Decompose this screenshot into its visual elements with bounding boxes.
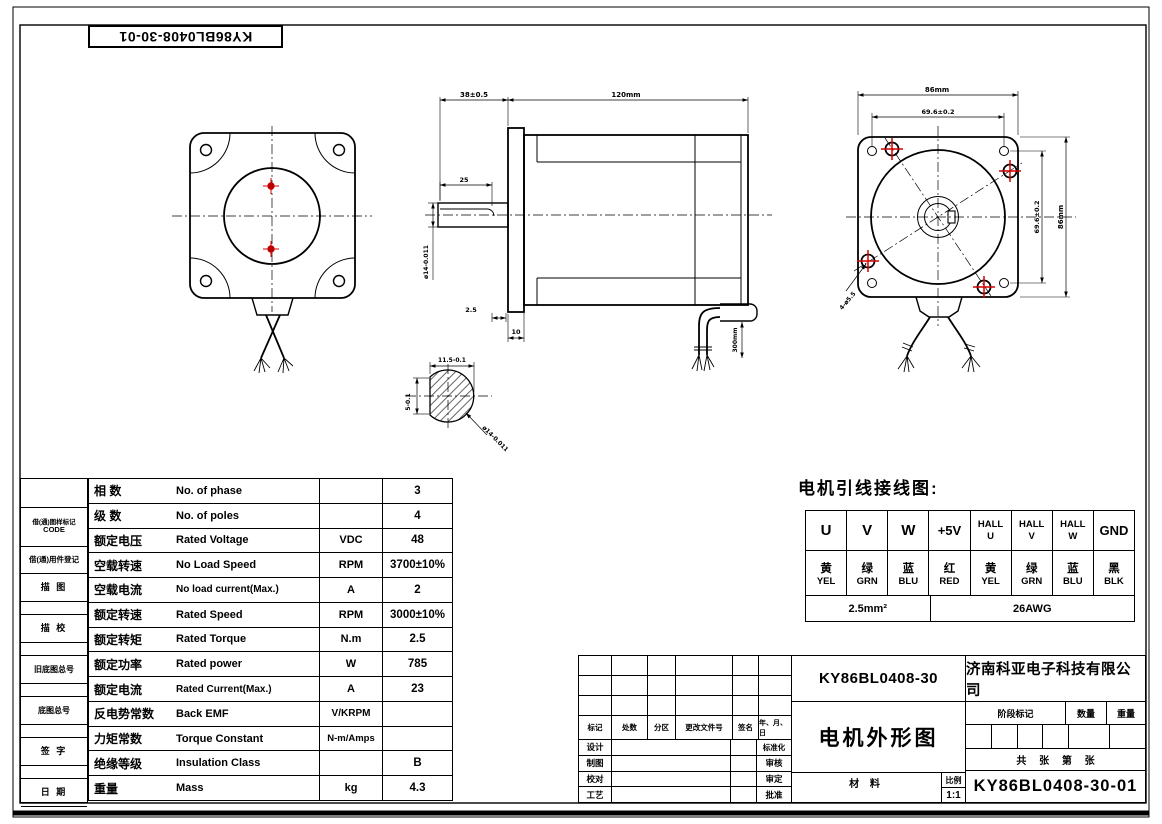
spec-unit: kg: [320, 776, 383, 800]
spec-row: 额定转矩Rated TorqueN.m2.5: [89, 628, 452, 653]
spec-row: 相 数No. of phase3: [89, 479, 452, 504]
spec-row: 额定转速Rated SpeedRPM3000±10%: [89, 603, 452, 628]
wiring-table: U V W +5V HALLU HALLV HALLW GND 黄YEL 绿GR…: [805, 510, 1135, 622]
spec-value: 23: [383, 677, 452, 701]
gauge-rest: 26AWG: [931, 596, 1135, 621]
dim-label-section-width: 11.5-0.1: [438, 357, 466, 364]
spec-en: Insulation Class: [176, 757, 260, 769]
spec-unit: A: [320, 677, 383, 701]
spec-en: Torque Constant: [176, 733, 263, 745]
front-red-pin-holes: [263, 178, 279, 257]
spec-value: 4.3: [383, 776, 452, 800]
strip-borrowed-parts: 借(通)用件登记: [21, 547, 87, 574]
scale-label: 比例: [942, 773, 965, 788]
gauge-uvw: 2.5mm²: [806, 596, 931, 621]
spec-row: 空载电流No load current(Max.)A2: [89, 578, 452, 603]
spec-cn: 空载电流: [94, 581, 176, 598]
wire-color: 绿GRN: [847, 551, 888, 595]
wiring-color-row: 黄YEL 绿GRN 蓝BLU 红RED 黄YEL 绿GRN 蓝BLU 黑BLK: [806, 551, 1134, 596]
label-design: 设计: [579, 740, 612, 755]
rev-header-row: 标记 处数 分区 更改文件号 签名 年、月、日: [579, 716, 791, 740]
dim-label-flange-step: 2.5: [465, 306, 477, 314]
side-wires: [692, 308, 720, 371]
label-draft: 制图: [579, 756, 612, 771]
strip-signature: 签 字: [21, 738, 87, 766]
spec-cn: 额定转速: [94, 606, 176, 623]
rev-header-sign: 签名: [733, 716, 759, 739]
dim-label-shaft-flat: 25: [459, 176, 469, 184]
spec-row: 力矩常数Torque ConstantN-m/Amps: [89, 727, 452, 752]
spec-row: 额定功率Rated powerW785: [89, 652, 452, 677]
spec-cn: 级 数: [94, 507, 176, 524]
spec-en: Rated Voltage: [176, 534, 249, 546]
dim-label-shaft-dia: ø14-0.011: [423, 245, 430, 279]
strip-empty: [21, 684, 87, 697]
material-label: 材 料: [792, 773, 942, 802]
part-number-rotated: KY86BL0408-30-01: [119, 29, 252, 45]
pin-v: V: [847, 511, 888, 550]
spec-en: Rated Torque: [176, 633, 246, 645]
spec-row: 额定电压Rated VoltageVDC48: [89, 529, 452, 554]
spec-cn: 额定转矩: [94, 631, 176, 648]
label-standardization: 标准化: [757, 740, 791, 755]
rev-empty-row: [579, 696, 791, 716]
rev-header-mark: 标记: [579, 716, 612, 739]
label-check: 校对: [579, 772, 612, 787]
sign-row: 设计标准化: [579, 740, 791, 756]
spec-value: 3700±10%: [383, 553, 452, 577]
title-block-middle: KY86BL0408-30 电机外形图 材 料 比例 1:1: [792, 656, 966, 802]
spec-en: Back EMF: [176, 708, 229, 720]
front-view: [172, 126, 372, 373]
wiring-gauge-row: 2.5mm² 26AWG: [806, 596, 1134, 621]
wire-color: 蓝BLU: [888, 551, 929, 595]
title-block-right: 济南科亚电子科技有限公司 阶段标记 数量 重量 共 张 第 张 KY86BL04…: [966, 656, 1145, 802]
sign-row: 工艺批准: [579, 787, 791, 802]
spec-unit: RPM: [320, 553, 383, 577]
sign-row: 校对审定: [579, 772, 791, 788]
spec-en: Mass: [176, 782, 204, 794]
rev-header-count: 处数: [612, 716, 648, 739]
spec-row: 额定电流Rated Current(Max.)A23: [89, 677, 452, 702]
wiring-title: 电机引线接线图:: [798, 474, 939, 499]
spec-value: 48: [383, 529, 452, 553]
spec-unit: A: [320, 578, 383, 602]
pin-w: W: [888, 511, 929, 550]
spec-value: [383, 727, 452, 751]
drawing-sheet: 38±0.5 120mm 25 ø14-0.011 2.5 10 300mm 1…: [0, 0, 1162, 824]
spec-table: 相 数No. of phase3 级 数No. of poles4 额定电压Ra…: [88, 478, 453, 801]
wiring-pin-row: U V W +5V HALLU HALLV HALLW GND: [806, 511, 1134, 551]
pin-hall-u: HALLU: [971, 511, 1012, 550]
spec-value: 3000±10%: [383, 603, 452, 627]
spec-unit: [320, 504, 383, 528]
spec-cn: 额定电流: [94, 681, 176, 698]
rear-view: [846, 126, 1076, 372]
dim-label-rear-hole-callout: 4-ø5.5: [838, 291, 857, 312]
stage-header-row: 阶段标记 数量 重量: [966, 702, 1145, 725]
wire-color: 黄YEL: [806, 551, 847, 595]
dim-label-rear-holes-top: 69.6±0.2: [922, 108, 955, 116]
strip-tracing: 描 图: [21, 574, 87, 602]
spec-cn: 重量: [94, 780, 176, 797]
rev-empty-row: [579, 676, 791, 696]
spec-cn: 绝缘等级: [94, 755, 176, 772]
strip-date: 日 期: [21, 779, 87, 807]
revision-grid: 标记 处数 分区 更改文件号 签名 年、月、日 设计标准化 制图审核 校对审定 …: [579, 656, 792, 802]
spec-unit: [320, 479, 383, 503]
spec-value: 785: [383, 652, 452, 676]
rev-empty-row: [579, 656, 791, 676]
dim-label-side-front: 38±0.5: [460, 91, 488, 99]
stage-mark-label: 阶段标记: [966, 702, 1066, 724]
label-ratify: 批准: [757, 787, 791, 802]
dim-label-rear-outer-right: 86mm: [1057, 205, 1065, 229]
pin-u: U: [806, 511, 847, 550]
spec-unit: N-m/Amps: [320, 727, 383, 751]
strip-empty: [21, 643, 87, 656]
spec-unit: RPM: [320, 603, 383, 627]
dim-label-section-dia: ø14-0.011: [481, 424, 510, 453]
sign-row: 制图审核: [579, 756, 791, 772]
weight-label: 重量: [1107, 702, 1145, 724]
label-review: 审核: [757, 756, 791, 771]
drawing-title: 电机外形图: [792, 702, 965, 773]
spec-row: 空载转速No Load SpeedRPM3700±10%: [89, 553, 452, 578]
registration-strip: 借(通)图样标记 CODE 借(通)用件登记 描 图 描 校 旧底图总号 底图总…: [20, 478, 88, 803]
spec-unit: VDC: [320, 529, 383, 553]
label-process: 工艺: [579, 787, 612, 802]
dim-label-rear-outer-top: 86mm: [925, 86, 949, 94]
spec-value: 2: [383, 578, 452, 602]
spec-cn: 额定电压: [94, 532, 176, 549]
model-number: KY86BL0408-30: [792, 656, 965, 702]
spec-en: Rated power: [176, 658, 242, 670]
shaft-section-view: [406, 364, 492, 428]
spec-cn: 额定功率: [94, 656, 176, 673]
spec-en: Rated Speed: [176, 609, 243, 621]
pin-hall-w: HALLW: [1053, 511, 1094, 550]
rev-header-date: 年、月、日: [759, 716, 791, 739]
dim-label-flange-thick: 10: [511, 328, 521, 336]
wire-color: 黑BLK: [1094, 551, 1134, 595]
wire-color: 红RED: [929, 551, 970, 595]
dim-label-side-body: 120mm: [611, 91, 640, 99]
strip-empty: [21, 602, 87, 615]
spec-cn: 相 数: [94, 482, 176, 499]
side-view: [425, 128, 772, 371]
spec-en: No. of phase: [176, 485, 242, 497]
strip-empty: [21, 725, 87, 738]
strip-sample-mark: 借(通)图样标记 CODE: [21, 508, 87, 547]
spec-en: No Load Speed: [176, 559, 256, 571]
strip-empty: [21, 766, 87, 779]
front-wires: [254, 315, 293, 373]
scale-value: 1:1: [942, 788, 965, 802]
spec-row: 级 数No. of poles4: [89, 504, 452, 529]
strip-code-label: CODE: [43, 526, 65, 535]
company-name: 济南科亚电子科技有限公司: [966, 656, 1145, 702]
spec-row: 绝缘等级Insulation ClassB: [89, 751, 452, 776]
pin-5v: +5V: [929, 511, 970, 550]
spec-value: 3: [383, 479, 452, 503]
rev-header-zone: 分区: [648, 716, 676, 739]
spec-en: No load current(Max.): [176, 584, 279, 595]
spec-unit: V/KRPM: [320, 702, 383, 726]
wire-color: 蓝BLU: [1053, 551, 1094, 595]
spec-row: 反电势常数Back EMFV/KRPM: [89, 702, 452, 727]
dim-label-wire-length: 300mm: [732, 327, 739, 352]
spec-value: 4: [383, 504, 452, 528]
dim-label-section-flat: 5-0.1: [405, 393, 412, 410]
spec-value: B: [383, 751, 452, 775]
spec-cn: 空载转速: [94, 557, 176, 574]
part-number-box: KY86BL0408-30-01: [88, 25, 283, 48]
spec-en: No. of poles: [176, 510, 239, 522]
strip-old-master-no: 旧底图总号: [21, 656, 87, 684]
spec-cn: 力矩常数: [94, 730, 176, 747]
spec-unit: [320, 751, 383, 775]
pin-gnd: GND: [1094, 511, 1134, 550]
title-block: 标记 处数 分区 更改文件号 签名 年、月、日 设计标准化 制图审核 校对审定 …: [578, 655, 1146, 803]
wire-color: 黄YEL: [971, 551, 1012, 595]
sheet-count: 共 张 第 张: [966, 749, 1145, 771]
strip-trace-check: 描 校: [21, 615, 87, 643]
rev-header-docno: 更改文件号: [676, 716, 733, 739]
quantity-label: 数量: [1066, 702, 1107, 724]
stage-empty-row: [966, 725, 1145, 749]
pin-hall-v: HALLV: [1012, 511, 1053, 550]
drawing-number: KY86BL0408-30-01: [966, 771, 1145, 802]
dim-label-rear-holes-right: 69.6±0.2: [1033, 201, 1041, 234]
wire-color: 绿GRN: [1012, 551, 1053, 595]
spec-unit: W: [320, 652, 383, 676]
strip-empty: [21, 479, 87, 508]
spec-en: Rated Current(Max.): [176, 684, 272, 695]
spec-row: 重量Masskg4.3: [89, 776, 452, 800]
rear-wires: [898, 317, 980, 372]
spec-value: [383, 702, 452, 726]
spec-value: 2.5: [383, 628, 452, 652]
strip-master-no: 底图总号: [21, 697, 87, 725]
label-approve-check: 审定: [757, 772, 791, 787]
spec-unit: N.m: [320, 628, 383, 652]
spec-cn: 反电势常数: [94, 705, 176, 722]
